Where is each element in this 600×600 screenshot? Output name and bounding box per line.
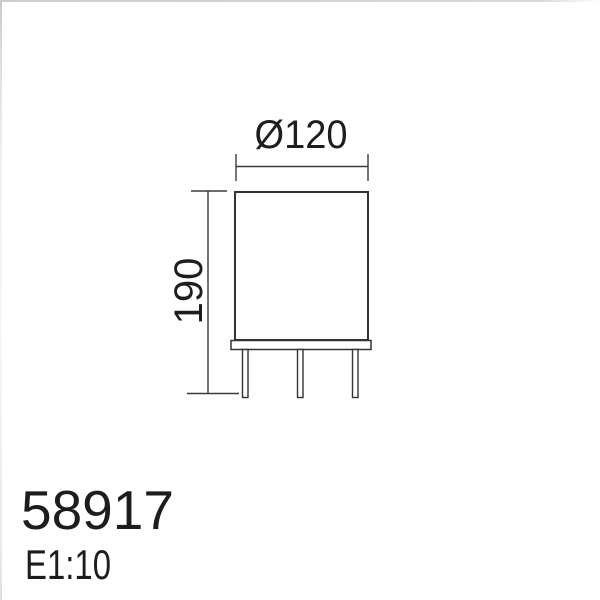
drawing-page: Ø120 190 58917 E1:10 xyxy=(0,0,600,600)
base-plate xyxy=(231,341,371,350)
lamp-outline xyxy=(231,192,371,398)
technical-drawing-canvas: Ø120 190 58917 E1:10 xyxy=(0,0,600,600)
leg-left xyxy=(243,350,249,398)
leg-middle xyxy=(298,350,304,398)
width-dimension-label: Ø120 xyxy=(255,113,348,157)
article-number: 58917 xyxy=(21,479,174,541)
page-edge-top xyxy=(0,0,600,2)
lamp-body xyxy=(235,192,368,340)
scale-label: E1:10 xyxy=(25,541,111,588)
height-dimension: 190 xyxy=(167,191,239,394)
leg-right xyxy=(353,350,359,398)
height-dimension-label: 190 xyxy=(167,258,211,325)
page-edge-left xyxy=(0,0,2,600)
footer-text: 58917 E1:10 xyxy=(21,479,174,588)
width-dimension: Ø120 xyxy=(236,113,368,181)
